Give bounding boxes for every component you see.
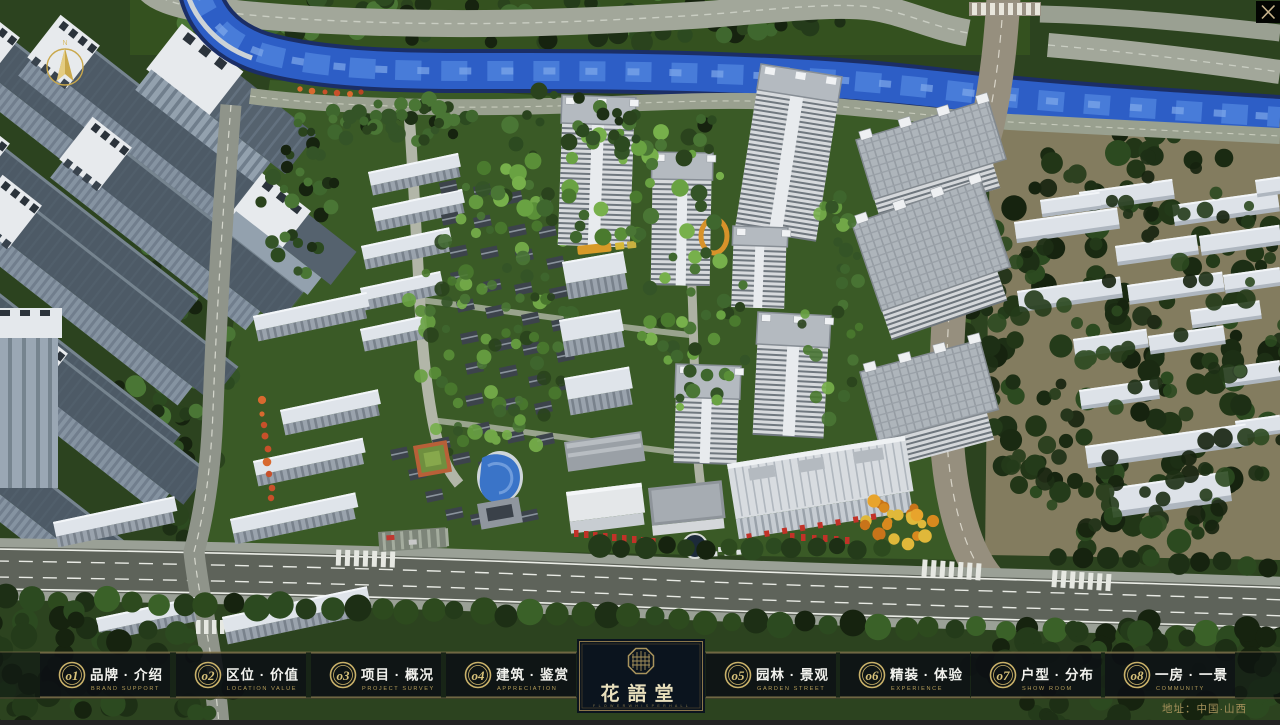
svg-text:品牌 · 介绍: 品牌 · 介绍 xyxy=(90,667,163,683)
svg-text:o5: o5 xyxy=(732,668,746,683)
svg-text:EXPERIENCE: EXPERIENCE xyxy=(891,686,943,692)
svg-text:项目 · 概况: 项目 · 概况 xyxy=(361,667,434,683)
svg-text:o8: o8 xyxy=(1131,668,1145,683)
svg-text:花語堂: 花語堂 xyxy=(600,682,681,705)
svg-text:区位 · 价值: 区位 · 价值 xyxy=(226,667,299,683)
svg-text:N: N xyxy=(62,40,67,47)
svg-text:园林 · 景观: 园林 · 景观 xyxy=(756,667,829,683)
svg-text:APPRECIATION: APPRECIATION xyxy=(497,686,557,692)
svg-text:BRAND SUPPORT: BRAND SUPPORT xyxy=(91,686,160,692)
svg-text:o2: o2 xyxy=(202,668,216,683)
svg-text:o6: o6 xyxy=(866,668,880,683)
svg-text:GARDEN STREET: GARDEN STREET xyxy=(757,686,825,692)
svg-text:地址：中国·山西: 地址：中国·山西 xyxy=(1162,702,1247,715)
svg-text:建筑 · 鉴赏: 建筑 · 鉴赏 xyxy=(495,667,569,683)
svg-text:户型 · 分布: 户型 · 分布 xyxy=(1021,667,1094,683)
svg-text:精装 · 体验: 精装 · 体验 xyxy=(890,667,963,683)
svg-text:LOCATION VALUE: LOCATION VALUE xyxy=(227,686,297,692)
svg-text:SHOW ROOM: SHOW ROOM xyxy=(1022,686,1073,692)
svg-text:一房 · 一景: 一房 · 一景 xyxy=(1155,667,1228,683)
svg-text:o4: o4 xyxy=(472,668,486,683)
svg-text:F L O W E R W H I S P E R: F L O W E R W H I S P E R H A L L xyxy=(593,704,689,708)
svg-text:o7: o7 xyxy=(997,668,1011,683)
svg-text:o3: o3 xyxy=(337,668,351,683)
svg-text:PROJECT SURVEY: PROJECT SURVEY xyxy=(362,686,435,692)
svg-text:COMMUNITY: COMMUNITY xyxy=(1156,686,1205,692)
svg-text:o1: o1 xyxy=(66,668,79,683)
